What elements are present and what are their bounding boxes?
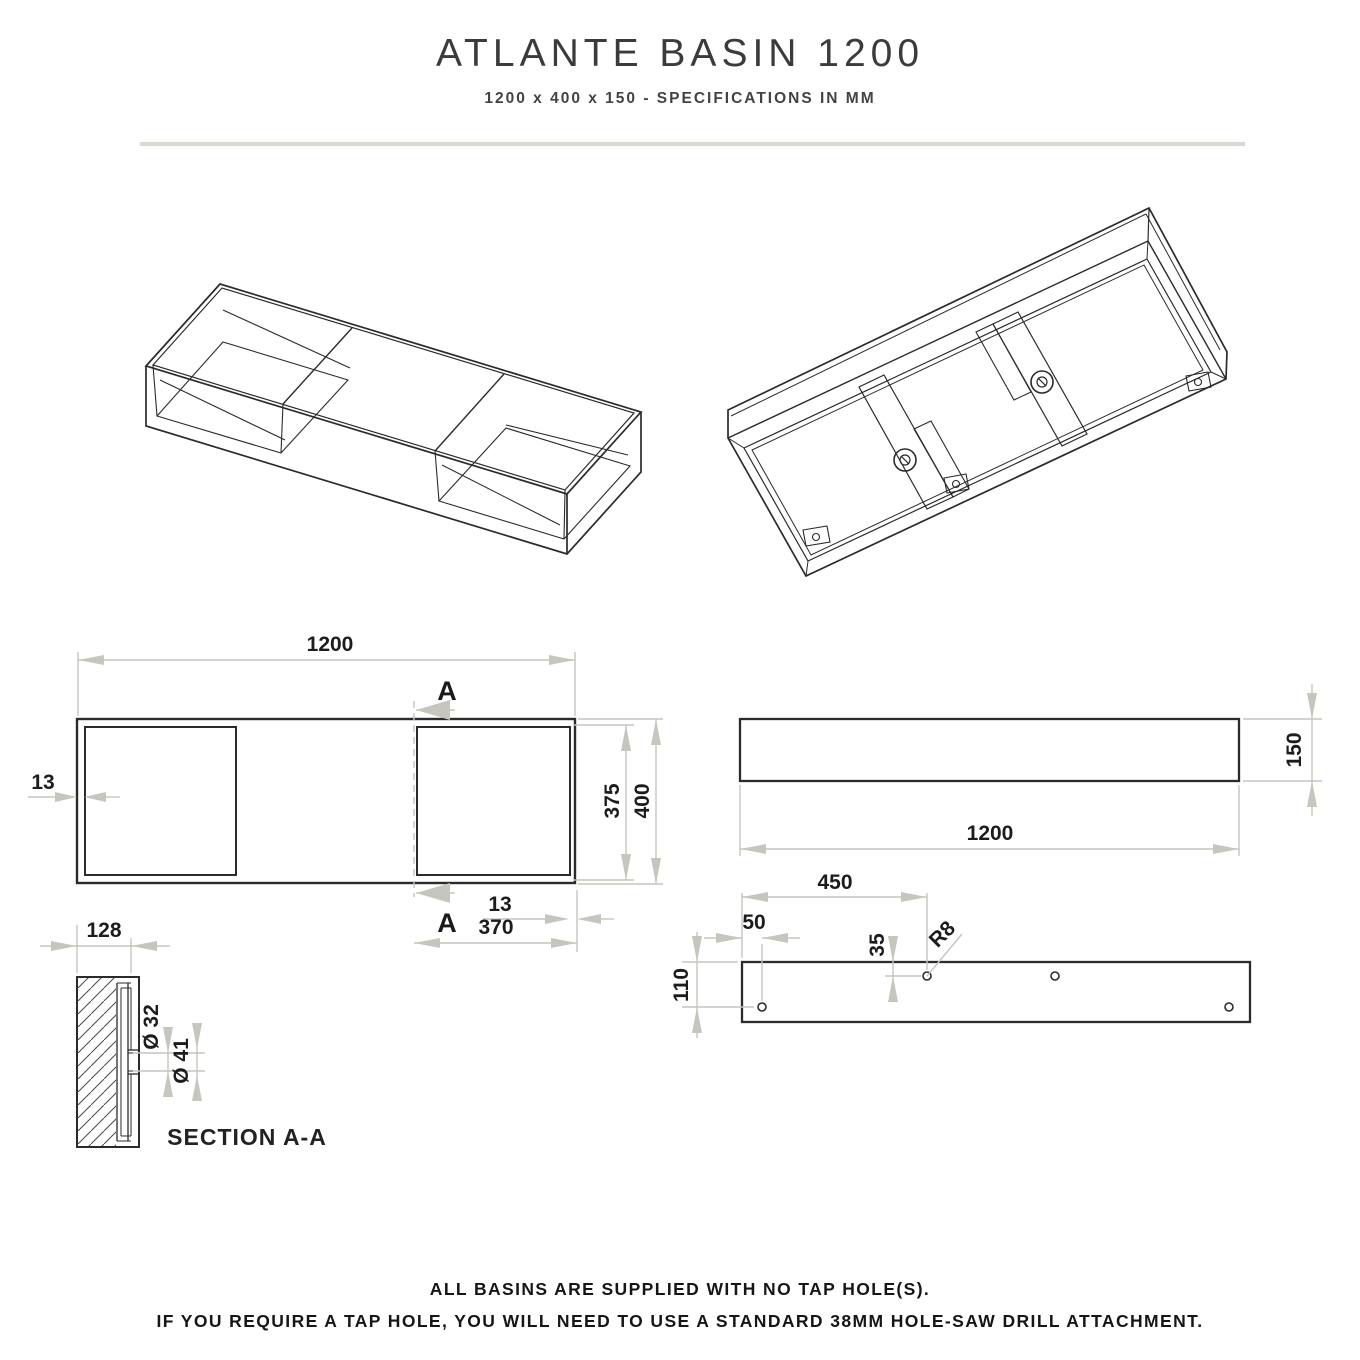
plan-length-label: 1200 bbox=[307, 633, 354, 656]
side-height-label: 150 bbox=[1283, 732, 1306, 767]
rear-top-offset-label: 35 bbox=[866, 933, 889, 957]
section-drain-inner-label: Ø 32 bbox=[140, 1004, 163, 1050]
fixing-hole bbox=[1051, 972, 1059, 980]
section-drain-outer-label: Ø 41 bbox=[170, 1038, 193, 1084]
isometric-top-view bbox=[146, 284, 641, 554]
plan-wall-right-label: 13 bbox=[488, 893, 511, 916]
plan-wall-left-label: 13 bbox=[31, 771, 54, 794]
section-marker-bottom: A bbox=[437, 908, 457, 938]
side-length-label: 1200 bbox=[967, 822, 1014, 845]
plan-right-basin bbox=[417, 727, 570, 875]
fixing-hole bbox=[758, 1003, 766, 1011]
plan-basin-width-label: 370 bbox=[478, 916, 513, 939]
side-elevation-view: 150 1200 bbox=[740, 684, 1322, 856]
footer-note-2: IF YOU REQUIRE A TAP HOLE, YOU WILL NEED… bbox=[0, 1311, 1360, 1332]
fixing-hole bbox=[1225, 1003, 1233, 1011]
plan-outer-depth-label: 400 bbox=[631, 783, 654, 818]
section-marker-top: A bbox=[437, 676, 457, 706]
section-width-label: 128 bbox=[86, 919, 121, 942]
rear-fixing-view: 450 50 35 R8 110 bbox=[670, 871, 1250, 1038]
plan-inner-depth-label: 375 bbox=[601, 783, 624, 818]
section-view: 128 Ø 32 Ø 41 SECTION A-A bbox=[40, 919, 327, 1150]
section-title: SECTION A-A bbox=[167, 1124, 327, 1150]
rear-edge-offset-label: 50 bbox=[742, 911, 765, 934]
plan-view: 1200 A A 13 375 bbox=[28, 633, 663, 952]
rear-hole-offset-label: 450 bbox=[817, 871, 852, 894]
footer-note-1: ALL BASINS ARE SUPPLIED WITH NO TAP HOLE… bbox=[0, 1279, 1360, 1300]
technical-drawing: 1200 A A 13 375 bbox=[0, 0, 1360, 1360]
isometric-bottom-view bbox=[728, 208, 1227, 576]
rear-bottom-offset-label: 110 bbox=[670, 968, 693, 1002]
rear-corner-radius-label: R8 bbox=[925, 917, 960, 952]
plan-left-basin bbox=[85, 727, 236, 875]
spec-sheet: ATLANTE BASIN 1200 1200 x 400 x 150 - SP… bbox=[0, 0, 1360, 1360]
